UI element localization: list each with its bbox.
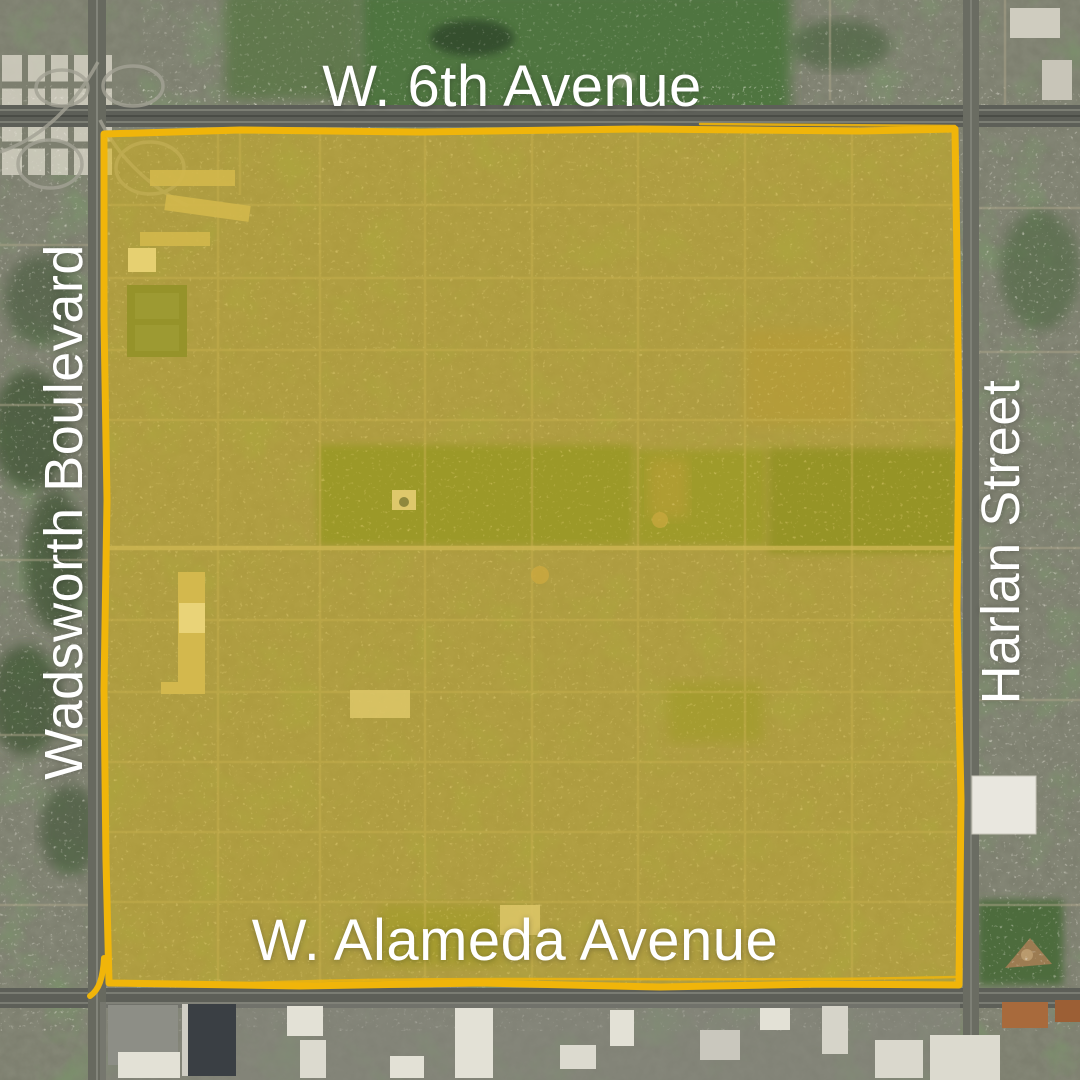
- street-label-top: W. 6th Avenue: [322, 58, 701, 116]
- highlighted-area: [106, 129, 959, 986]
- street-label-right: Harlan Street: [974, 380, 1028, 705]
- map-graphic: W. 6th Avenue Wadsworth Boulevard Harlan…: [0, 0, 1080, 1080]
- street-label-bottom: W. Alameda Avenue: [252, 912, 779, 970]
- street-label-left: Wadsworth Boulevard: [37, 244, 91, 780]
